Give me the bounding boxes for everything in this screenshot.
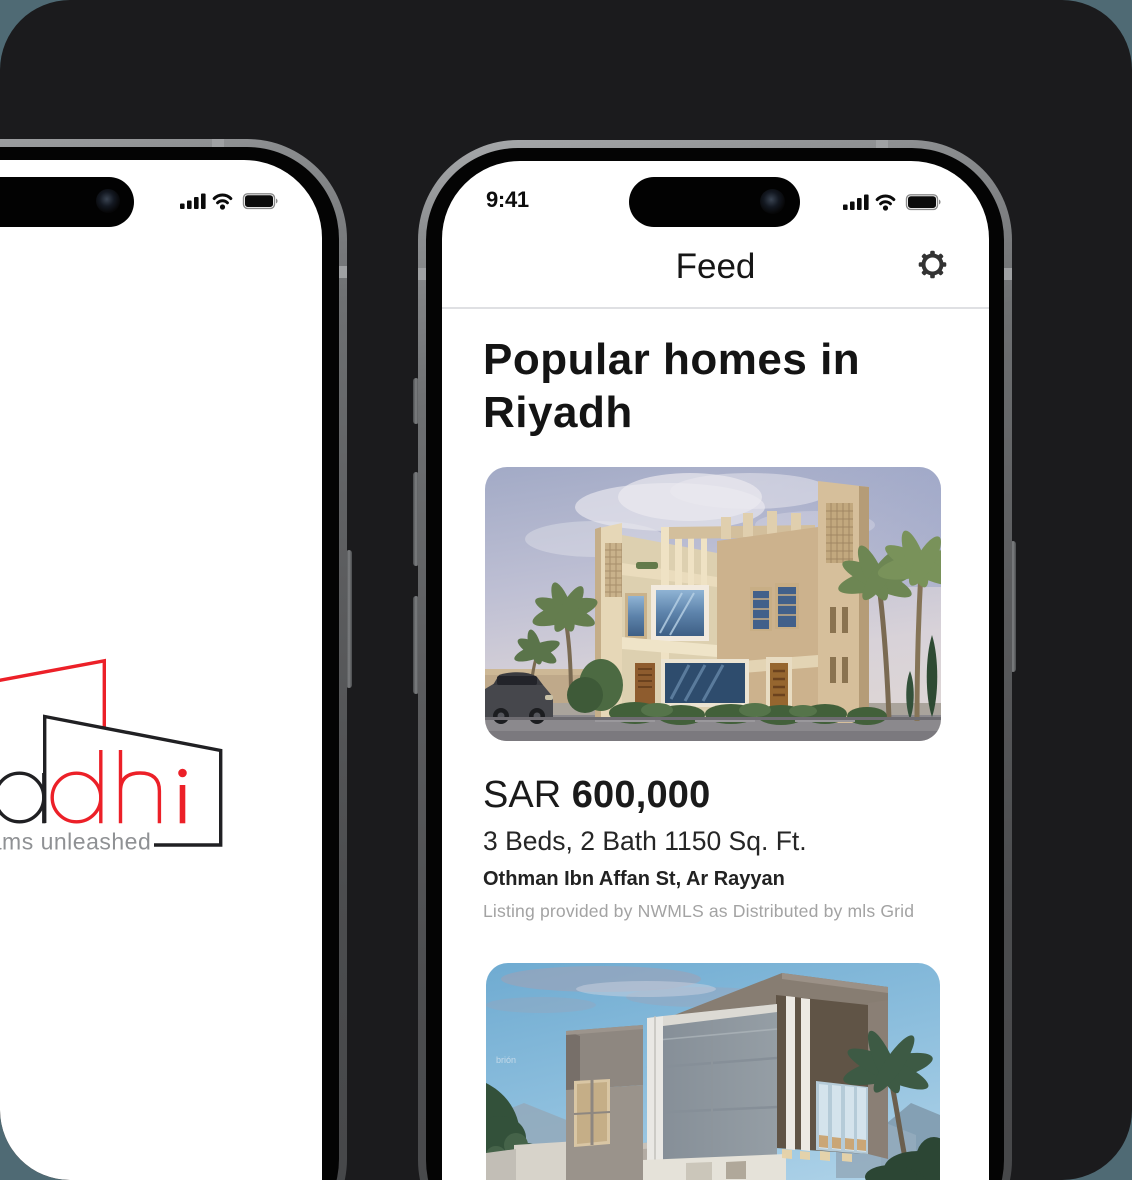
- svg-text:brión: brión: [496, 1055, 516, 1065]
- svg-text:dreams unleashed: dreams unleashed: [0, 829, 151, 855]
